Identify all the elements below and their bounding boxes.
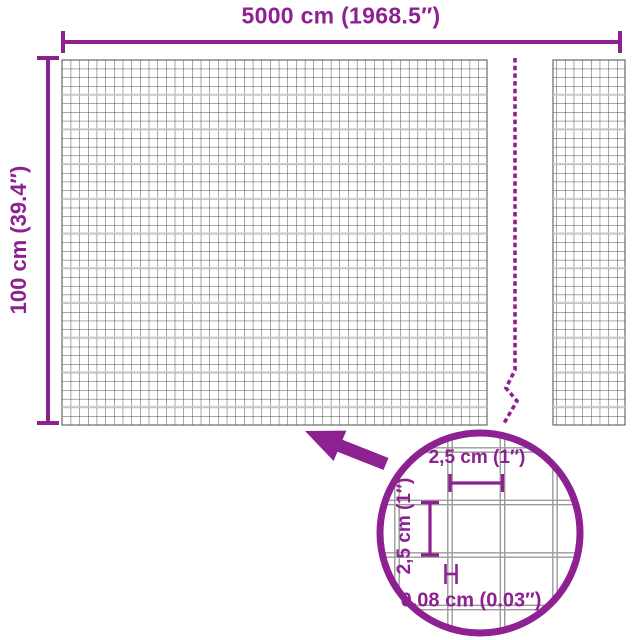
width-dimension-line — [63, 31, 620, 53]
width-label: 5000 cm (1968.5″) — [242, 3, 441, 30]
diagram-canvas: 5000 cm (1968.5″) 100 cm (39.4″) 2,5 cm … — [0, 0, 640, 640]
height-dimension-line — [37, 58, 59, 423]
height-label: 100 cm (39.4″) — [6, 166, 32, 315]
detail-height-label: 2,5 cm (1″) — [394, 478, 416, 575]
break-line — [503, 58, 517, 425]
mesh-panel-right — [553, 60, 625, 425]
mesh-panel-left — [62, 60, 487, 425]
zoom-arrow-icon — [305, 431, 389, 470]
wire-thickness-label: 0,08 cm (0.03″) — [401, 590, 542, 613]
detail-width-label: 2,5 cm (1″) — [429, 447, 526, 469]
diagram-graphics — [0, 0, 640, 640]
